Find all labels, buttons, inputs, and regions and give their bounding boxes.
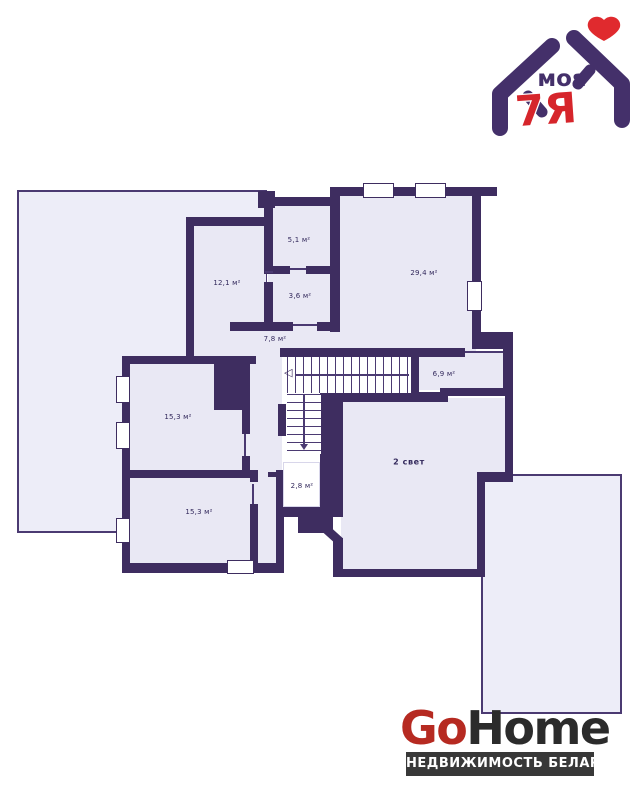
wall xyxy=(320,392,333,517)
wall xyxy=(333,402,343,517)
gohome-home-text: Home xyxy=(466,701,609,755)
floorplan-page: ◁ 12,1 м² 5,1 м² 3,6 м² 29,4 м² 7,8 м² 6… xyxy=(0,0,638,800)
window xyxy=(467,281,482,311)
room-label-3-6: 3,6 м² xyxy=(289,292,312,300)
room-label-29-4: 29,4 м² xyxy=(410,269,437,277)
room-label-12-1: 12,1 м² xyxy=(213,279,240,287)
brand-mark: 7Я xyxy=(514,83,579,136)
room-fill-2svet-upper xyxy=(341,398,509,476)
room-label-15-3-lower: 15,3 м² xyxy=(185,508,212,516)
wall xyxy=(411,357,419,392)
wall xyxy=(330,187,340,332)
wall xyxy=(333,392,448,402)
gohome-tagline: НЕДВИЖИМОСТЬ БЕЛАРУСИ xyxy=(406,752,594,776)
door xyxy=(465,351,503,353)
wall xyxy=(298,507,333,533)
wall xyxy=(280,348,465,357)
wall xyxy=(122,356,130,378)
window xyxy=(116,518,130,543)
window xyxy=(363,183,394,198)
wall xyxy=(268,472,278,477)
wall xyxy=(505,396,513,482)
wall xyxy=(472,332,513,349)
room-label-5-1: 5,1 м² xyxy=(288,236,311,244)
wall xyxy=(122,448,130,521)
room-fill-2svet-lower xyxy=(341,476,481,573)
room-label-2-8: 2,8 м² xyxy=(291,482,314,490)
wall xyxy=(122,402,130,424)
door xyxy=(265,271,273,273)
wall xyxy=(276,507,300,517)
window xyxy=(227,560,254,574)
wall xyxy=(317,322,340,331)
wall xyxy=(332,187,366,196)
wall xyxy=(230,322,293,331)
room-fill-6-9 xyxy=(418,353,508,390)
wall xyxy=(186,217,194,364)
room-fill-29-4 xyxy=(336,192,476,352)
stairs-direction-arrow: ◁ xyxy=(284,367,292,378)
stairs-stringer-line xyxy=(303,394,305,444)
gohome-logo: GoHome НЕДВИЖИМОСТЬ БЕЛАРУСИ xyxy=(398,704,598,780)
wall xyxy=(276,517,284,567)
wall xyxy=(278,404,286,436)
wall xyxy=(472,187,481,283)
stairs-direction-arrow xyxy=(300,444,308,450)
wall xyxy=(440,388,513,396)
room-label-6-9: 6,9 м² xyxy=(433,370,456,378)
footprint-outline-bottom-right xyxy=(481,474,622,714)
door xyxy=(290,268,306,270)
heart-icon xyxy=(588,17,620,41)
door xyxy=(293,324,317,326)
wall xyxy=(242,356,250,434)
stairs-upper-flight: ◁ xyxy=(287,357,411,393)
gohome-go-text: Go xyxy=(400,701,466,755)
wall xyxy=(264,197,340,206)
wall xyxy=(122,470,256,478)
wall xyxy=(186,217,268,226)
wall xyxy=(337,569,485,577)
room-label-15-3-upper: 15,3 м² xyxy=(164,413,191,421)
house-hands-icon: моя 7Я xyxy=(484,8,638,140)
wall xyxy=(477,482,485,577)
wall xyxy=(333,538,343,577)
gohome-wordmark: GoHome xyxy=(400,704,610,752)
room-label-2svet: 2 свет xyxy=(393,458,425,467)
stairs-lower-flight xyxy=(287,394,321,454)
window xyxy=(116,422,130,449)
wall xyxy=(264,197,273,267)
window xyxy=(415,183,446,198)
wall xyxy=(122,563,230,573)
brand-logo-moya7ya: моя 7Я xyxy=(484,8,638,140)
door xyxy=(252,484,254,504)
door xyxy=(244,434,246,456)
room-label-7-8: 7,8 м² xyxy=(264,335,287,343)
window xyxy=(116,376,130,403)
wall xyxy=(477,472,513,482)
stairs-stringer-line xyxy=(295,374,409,376)
room-fill-15-3-lower xyxy=(128,476,252,565)
wall xyxy=(250,470,258,482)
